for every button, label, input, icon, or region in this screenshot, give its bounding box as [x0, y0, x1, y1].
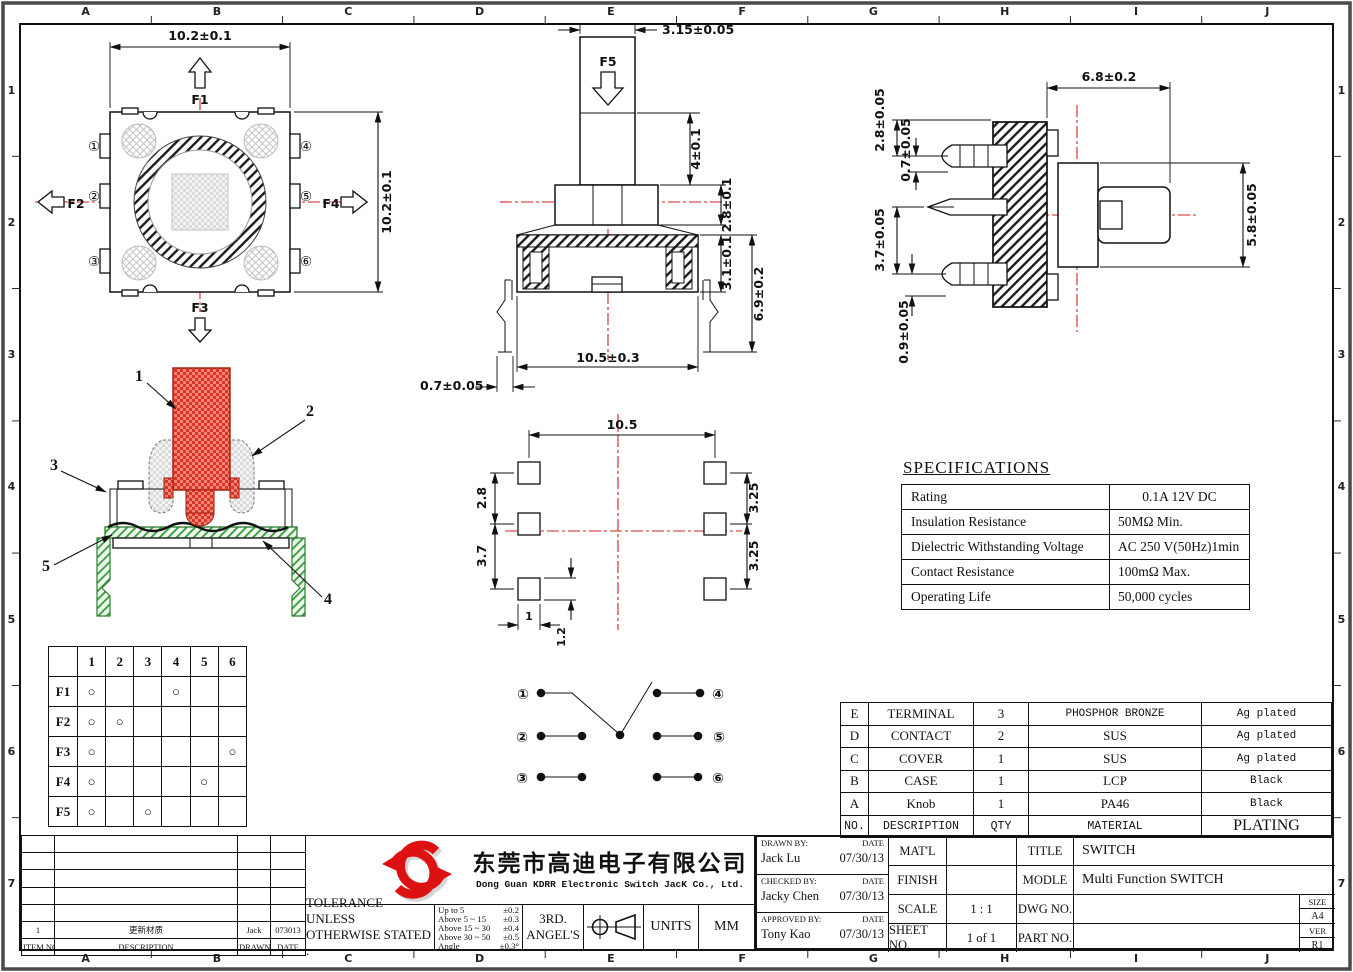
mark-cell	[190, 797, 218, 827]
bom-qty: 3	[974, 703, 1029, 726]
mark-cell: ○	[78, 797, 106, 827]
spec-name: Contact Resistance	[902, 560, 1110, 585]
force-label-f4: F4	[322, 196, 340, 211]
finish-value	[947, 866, 1017, 895]
ruler-letter: I	[1070, 5, 1201, 22]
spec-value: 100mΩ Max.	[1110, 560, 1250, 585]
section-view: 1 2 3 5 4	[42, 368, 332, 616]
mark-cell	[190, 707, 218, 737]
pcb-layout: 10.5 2.8 3.7 3.25 3.25 1 1.2	[474, 414, 761, 647]
approved-by-cell: APPROVED BY:DATE Tony Kao07/30/13	[757, 913, 889, 952]
mark-cell: ○	[78, 677, 106, 707]
row-label: F5	[49, 797, 78, 827]
mark-cell: ○	[134, 797, 162, 827]
drawn-by-name: Jack Lu	[761, 851, 800, 866]
bom-material: SUS	[1029, 748, 1202, 771]
mark-cell: ○	[106, 707, 134, 737]
dim-label: 10.2±0.1	[379, 170, 394, 233]
bom-description: Knob	[869, 793, 974, 816]
force-label-f1: F1	[191, 92, 208, 107]
table-row	[22, 904, 306, 921]
mark-cell	[162, 707, 190, 737]
table-row: F1○○	[49, 677, 247, 707]
tolerance-item: Angle±0.3°	[438, 942, 519, 951]
drawn-date: 07/30/13	[840, 851, 884, 866]
dim-label: 0.7±0.05	[420, 378, 483, 393]
dim-label: 3.1±0.1	[719, 236, 734, 291]
part-label-2: 2	[306, 403, 314, 420]
drawing-sheet: 10.2±0.1 10.2±0.1 F1 F2 F3 F4 ① ② ③ ④ ⑤ …	[0, 0, 1353, 972]
mark-cell	[106, 677, 134, 707]
dim-label: 2.8±0.1	[719, 178, 734, 233]
function-table: 123456 F1○○ F2○○ F3○○ F4○○ F5○○	[48, 646, 247, 827]
ruler-number: 5	[4, 553, 19, 685]
bom-qty: 2	[974, 725, 1029, 748]
spec-value: AC 250 V(50Hz)1min	[1110, 535, 1250, 560]
table-row	[22, 853, 306, 870]
circuit-pin-3: ③	[516, 771, 528, 787]
ruler-letter: D	[414, 5, 545, 22]
circuit-pin-6: ⑥	[712, 771, 724, 787]
dim-label: 10.5±0.3	[576, 350, 639, 365]
ruler-letter: H	[939, 5, 1070, 22]
circuit-pin-5: ⑤	[713, 730, 725, 746]
dim-label: 3.15±0.05	[662, 22, 734, 37]
part-label-3: 3	[50, 457, 58, 474]
force-label-f5: F5	[599, 54, 616, 69]
ruler-number: 7	[4, 818, 19, 950]
spec-value: 50,000 cycles	[1110, 585, 1250, 610]
bom-plating: Black	[1202, 793, 1332, 816]
units-label: UNITS	[644, 905, 699, 949]
bom-material: PHOSPHOR BRONZE	[1029, 703, 1202, 726]
mark-cell	[190, 677, 218, 707]
ruler-letter: I	[1070, 952, 1201, 969]
bom-description: TERMINAL	[869, 703, 974, 726]
row-label: F3	[49, 737, 78, 767]
ruler-number: 4	[1334, 421, 1349, 553]
table-row: Insulation Resistance50MΩ Min.	[902, 510, 1250, 535]
dim-label: 3.7±0.05	[872, 208, 887, 271]
terminal-number: ⑤	[300, 189, 312, 205]
table-row: AKnob1PA46Black	[841, 793, 1332, 816]
ruler-number: 1	[1334, 24, 1349, 156]
ruler-number: 5	[1334, 553, 1349, 685]
dwg-no-value	[1074, 895, 1300, 924]
ruler-number: 3	[1334, 289, 1349, 421]
ruler-number: 2	[1334, 156, 1349, 288]
part-no-label: PART NO.	[1017, 924, 1074, 952]
table-row: ETERMINAL3PHOSPHOR BRONZEAg plated	[841, 703, 1332, 726]
mark-cell	[190, 737, 218, 767]
ruler-right: 1234567	[1334, 24, 1349, 950]
ruler-letter: G	[808, 952, 939, 969]
table-row: F3○○	[49, 737, 247, 767]
force-arrow-down-icon	[189, 318, 211, 342]
mark-cell: ○	[162, 677, 190, 707]
bom-description: CONTACT	[869, 725, 974, 748]
circuit-pin-2: ②	[516, 730, 528, 746]
units-value: MM	[699, 905, 754, 949]
table-row	[22, 870, 306, 887]
table-row: F2○○	[49, 707, 247, 737]
bom-table: ETERMINAL3PHOSPHOR BRONZEAg plated DCONT…	[840, 702, 1332, 838]
dim-label: 5.8±0.05	[1244, 183, 1259, 246]
dim-label: 3.7	[474, 545, 489, 567]
third-angle-projection-icon	[584, 905, 644, 949]
ruler-letter: J	[1202, 952, 1333, 969]
mark-cell	[134, 737, 162, 767]
mark-cell	[106, 797, 134, 827]
ruler-number: 3	[4, 289, 19, 421]
table-row: 123456	[49, 647, 247, 677]
mark-cell	[162, 797, 190, 827]
col-header: 6	[218, 647, 246, 677]
matl-label: MAT'L	[889, 837, 947, 866]
revision-table: 1更新材质Jack073013 ITEM NO.DESCRIPTIONDRAWN…	[21, 835, 306, 956]
mark-cell	[134, 707, 162, 737]
terminal-number: ②	[88, 189, 100, 205]
circuit-pin-1: ①	[517, 687, 529, 703]
rev-header-date: DATE	[271, 939, 306, 956]
bom-qty: 1	[974, 770, 1029, 793]
table-header-row: ITEM NO.DESCRIPTIONDRAWNDATE	[22, 939, 306, 956]
col-header: 4	[162, 647, 190, 677]
part-no-value	[1074, 924, 1300, 952]
front-view: F5 3.15±0.05 4±0.1 2.8±0.1 3.1±0.1 6.9±0…	[420, 22, 766, 393]
bom-material: LCP	[1029, 770, 1202, 793]
mark-cell	[162, 737, 190, 767]
sheet-no-value: 1 of 1	[947, 924, 1017, 952]
ruler-number: 4	[4, 421, 19, 553]
terminal-number: ⑥	[300, 254, 312, 270]
dim-label: 3.25	[746, 483, 761, 514]
ruler-top: ABCDEFGHIJ	[20, 5, 1333, 22]
tolerance-strip: TOLERANCE UNLESS OTHERWISE STATED : Up t…	[305, 905, 755, 950]
dim-label: 0.7±0.05	[898, 118, 913, 181]
dwg-no-label: DWG NO.	[1017, 895, 1074, 924]
force-label-f2: F2	[67, 196, 84, 211]
bom-no: C	[841, 748, 869, 771]
col-header: 2	[106, 647, 134, 677]
tolerance-line2: OTHERWISE STATED :	[306, 927, 434, 960]
ver-label: VER	[1300, 924, 1335, 938]
bom-plating: Ag plated	[1202, 725, 1332, 748]
table-row	[22, 887, 306, 904]
terminal-number: ③	[88, 254, 100, 270]
specifications-title: SPECIFICATIONS	[903, 458, 1253, 478]
approved-date: 07/30/13	[840, 927, 884, 942]
terminal-number: ④	[300, 139, 312, 155]
ruler-letter: E	[545, 952, 676, 969]
rev-header-item: ITEM NO.	[22, 939, 55, 956]
title-block: DRAWN BY:DATE Jack Lu07/30/13 CHECKED BY…	[755, 835, 1333, 950]
bom-no: A	[841, 793, 869, 816]
part-label-1: 1	[135, 368, 143, 385]
drawn-by-cell: DRAWN BY:DATE Jack Lu07/30/13	[757, 837, 889, 875]
specifications-block: SPECIFICATIONS Rating0.1A 12V DC Insulat…	[901, 458, 1253, 610]
mark-cell	[106, 767, 134, 797]
ruler-left: 1234567	[4, 24, 19, 950]
size-label: SIZE	[1300, 895, 1335, 909]
spec-name: Dielectric Withstanding Voltage	[902, 535, 1110, 560]
ruler-letter: G	[808, 5, 939, 22]
size-value: A4	[1300, 909, 1335, 924]
spec-value: 50MΩ Min.	[1110, 510, 1250, 535]
dim-label: 0.9±0.05	[896, 300, 911, 363]
bom-no: B	[841, 770, 869, 793]
ruler-number: 6	[1334, 685, 1349, 817]
terminal-number: ①	[88, 139, 100, 155]
bom-qty: 1	[974, 748, 1029, 771]
finish-label: FINISH	[889, 866, 947, 895]
rev-description: 更新材质	[55, 921, 238, 938]
mark-cell: ○	[218, 737, 246, 767]
mark-cell	[162, 767, 190, 797]
sheet-no-label: SHEET NO.	[889, 924, 947, 952]
row-label: F1	[49, 677, 78, 707]
ruler-number: 6	[4, 685, 19, 817]
table-row: Contact Resistance100mΩ Max.	[902, 560, 1250, 585]
matl-value	[947, 837, 1017, 866]
checked-by-name: Jacky Chen	[761, 889, 819, 904]
scale-label: SCALE	[889, 895, 947, 924]
mark-cell: ○	[78, 737, 106, 767]
checked-by-cell: CHECKED BY:DATE Jacky Chen07/30/13	[757, 875, 889, 913]
dim-label: 2.8±0.05	[872, 88, 887, 151]
force-label-f3: F3	[191, 300, 208, 315]
part-label-4: 4	[324, 591, 332, 608]
scale-value: 1 : 1	[947, 895, 1017, 924]
ruler-number: 2	[4, 156, 19, 288]
mark-cell: ○	[78, 707, 106, 737]
title-value: SWITCH	[1074, 837, 1335, 866]
bom-qty: 1	[974, 793, 1029, 816]
bom-no: D	[841, 725, 869, 748]
table-row: CCOVER1SUSAg plated	[841, 748, 1332, 771]
tolerance-line1: TOLERANCE UNLESS	[306, 895, 434, 928]
table-row: Operating Life50,000 cycles	[902, 585, 1250, 610]
model-label: MODLE	[1017, 866, 1074, 895]
dim-label: 3.25	[746, 541, 761, 572]
ver-value: R1	[1300, 938, 1335, 952]
force-arrow-right-icon	[341, 191, 367, 213]
company-name-cn: 东莞市高迪电子有限公司	[466, 850, 754, 878]
mark-cell: ○	[78, 767, 106, 797]
bom-material: SUS	[1029, 725, 1202, 748]
dim-label: 4±0.1	[688, 128, 703, 169]
col-header: 5	[190, 647, 218, 677]
side-view: 6.8±0.2 2.8±0.05 0.7±0.05 3.7±0.05 0.9±0…	[872, 69, 1259, 364]
rev-header-drawn: DRAWN	[238, 939, 271, 956]
circuit-pin-4: ④	[712, 687, 724, 703]
ruler-letter: A	[20, 5, 151, 22]
rev-header-description: DESCRIPTION	[55, 939, 238, 956]
mark-cell: ○	[190, 767, 218, 797]
mark-cell	[218, 677, 246, 707]
table-row: Dielectric Withstanding VoltageAC 250 V(…	[902, 535, 1250, 560]
bom-material: PA46	[1029, 793, 1202, 816]
col-header: 1	[78, 647, 106, 677]
table-row: F4○○	[49, 767, 247, 797]
mark-cell	[106, 737, 134, 767]
table-row	[22, 836, 306, 853]
dim-label: 1.2	[555, 627, 568, 647]
table-row: DCONTACT2SUSAg plated	[841, 725, 1332, 748]
approved-by-name: Tony Kao	[761, 927, 810, 942]
ruler-letter: C	[283, 5, 414, 22]
ruler-letter: J	[1202, 5, 1333, 22]
bom-description: COVER	[869, 748, 974, 771]
dim-label: 10.2±0.1	[168, 28, 231, 43]
ruler-number: 7	[1334, 818, 1349, 950]
spec-name: Rating	[902, 485, 1110, 510]
ruler-letter: F	[676, 5, 807, 22]
bom-no: E	[841, 703, 869, 726]
force-arrow-up-icon	[189, 58, 211, 88]
dim-label: 1	[525, 610, 533, 623]
table-row: 1更新材质Jack073013	[22, 921, 306, 938]
tolerance-statement: TOLERANCE UNLESS OTHERWISE STATED :	[306, 905, 435, 949]
mark-cell	[134, 677, 162, 707]
dim-label: 6.9±0.2	[751, 267, 766, 322]
ruler-number: 1	[4, 24, 19, 156]
circuit-diagram: ① ② ③ ④ ⑤ ⑥	[516, 682, 725, 787]
model-value: Multi Function SWITCH	[1074, 866, 1335, 895]
ruler-letter: H	[939, 952, 1070, 969]
mark-cell	[134, 767, 162, 797]
bom-plating: Ag plated	[1202, 748, 1332, 771]
bom-description: CASE	[869, 770, 974, 793]
mark-cell	[218, 707, 246, 737]
rev-item: 1	[22, 921, 55, 938]
rev-drawn: Jack	[238, 921, 271, 938]
table-row: F5○○	[49, 797, 247, 827]
spec-name: Operating Life	[902, 585, 1110, 610]
tolerance-values: Up to 5±0.2 Above 5 ~ 15±0.3 Above 15 ~ …	[435, 905, 523, 949]
force-arrow-left-icon	[38, 191, 64, 213]
mark-cell	[218, 797, 246, 827]
dim-label: 2.8	[474, 487, 489, 509]
rev-date: 073013	[271, 921, 306, 938]
checked-date: 07/30/13	[840, 889, 884, 904]
top-view: 10.2±0.1 10.2±0.1 F1 F2 F3 F4 ① ② ③ ④ ⑤ …	[35, 28, 394, 342]
row-label: F2	[49, 707, 78, 737]
table-row: Rating0.1A 12V DC	[902, 485, 1250, 510]
ruler-letter: E	[545, 5, 676, 22]
dim-label: 10.5	[607, 417, 638, 432]
bom-plating: Ag plated	[1202, 703, 1332, 726]
part-label-5: 5	[42, 558, 50, 575]
title-label: TITLE	[1017, 837, 1074, 866]
mark-cell	[218, 767, 246, 797]
ruler-letter: B	[151, 5, 282, 22]
dim-label: 6.8±0.2	[1082, 69, 1137, 84]
col-header: 3	[134, 647, 162, 677]
spec-value: 0.1A 12V DC	[1110, 485, 1250, 510]
spec-name: Insulation Resistance	[902, 510, 1110, 535]
bom-plating: Black	[1202, 770, 1332, 793]
ruler-letter: F	[676, 952, 807, 969]
specifications-table: Rating0.1A 12V DC Insulation Resistance5…	[901, 484, 1250, 610]
row-label: F4	[49, 767, 78, 797]
side-view-pins	[928, 145, 1007, 285]
company-name-en: Dong Guan KDRR Electronic Switch JacK Co…	[466, 879, 754, 890]
table-row: BCASE1LCPBlack	[841, 770, 1332, 793]
projection-label: 3RD. ANGEL'S	[523, 905, 584, 949]
